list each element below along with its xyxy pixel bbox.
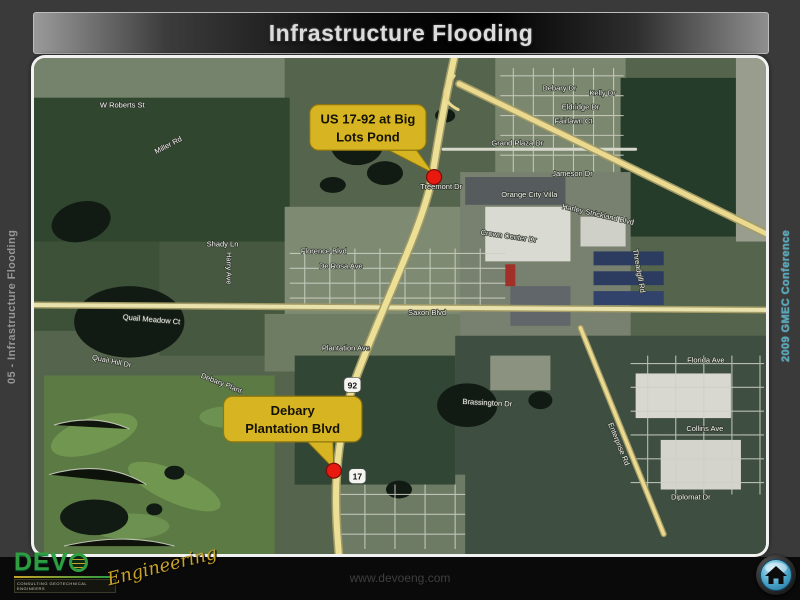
street-label: Shady Ln: [207, 240, 239, 249]
page-title: Infrastructure Flooding: [269, 20, 534, 47]
street-label: Fairlawn Ct: [554, 117, 593, 126]
home-icon: [759, 558, 793, 592]
street-label: Treemont Dr: [420, 182, 462, 191]
marker-us17-92-big-lots-pond: [427, 170, 442, 185]
slide: Infrastructure Flooding 05 - Infrastruct…: [0, 0, 800, 600]
street-label: Kelly Dr: [589, 89, 616, 98]
street-label: De Rosa Ave: [319, 261, 363, 270]
route-shield-92: 92: [344, 377, 361, 392]
street-label: Eldridge Dr: [562, 103, 600, 112]
map-svg: W Roberts St Miller Rd Debary Dr Kelly D…: [34, 58, 766, 554]
svg-text:17: 17: [353, 472, 363, 482]
street-label: Grand Plaza Dr: [491, 138, 543, 147]
home-button[interactable]: [756, 555, 796, 595]
route-shield-17: 17: [349, 469, 366, 484]
street-label: Diplomat Dr: [671, 492, 711, 501]
svg-text:Lots Pond: Lots Pond: [336, 129, 400, 144]
callout-big-lots-pond: US 17-92 at Big Lots Pond: [310, 105, 426, 151]
street-label: Debary Dr: [542, 84, 577, 93]
callout-debary-plantation: Debary Plantation Blvd: [224, 396, 362, 442]
svg-text:Debary: Debary: [271, 403, 316, 418]
street-label: Florence Blvd: [301, 246, 347, 255]
header-bar: Infrastructure Flooding: [33, 12, 769, 54]
street-label: Plantation Ave: [322, 344, 370, 353]
svg-text:US 17-92 at Big: US 17-92 at Big: [321, 112, 416, 127]
satellite-map: W Roberts St Miller Rd Debary Dr Kelly D…: [34, 58, 766, 554]
street-label: Jameson Dr: [552, 169, 593, 178]
street-label: Orange City Villa: [501, 190, 558, 199]
street-label: Saxon Blvd: [408, 308, 446, 317]
street-label: Harry Ave: [225, 252, 234, 284]
svg-text:92: 92: [348, 380, 358, 390]
conference-label: 2009 GMEC Conference: [780, 230, 792, 362]
street-label: Collins Ave: [686, 424, 723, 433]
street-label: Florida Ave: [687, 356, 724, 365]
globe-o-icon: [69, 553, 88, 572]
street-label: W Roberts St: [100, 101, 146, 110]
map-frame: W Roberts St Miller Rd Debary Dr Kelly D…: [31, 55, 769, 557]
website-url: www.devoeng.com: [0, 571, 800, 585]
svg-text:Plantation Blvd: Plantation Blvd: [245, 421, 340, 436]
marker-debary-plantation-blvd: [326, 463, 341, 478]
slide-number-label: 05 - Infrastructure Flooding: [6, 230, 18, 384]
